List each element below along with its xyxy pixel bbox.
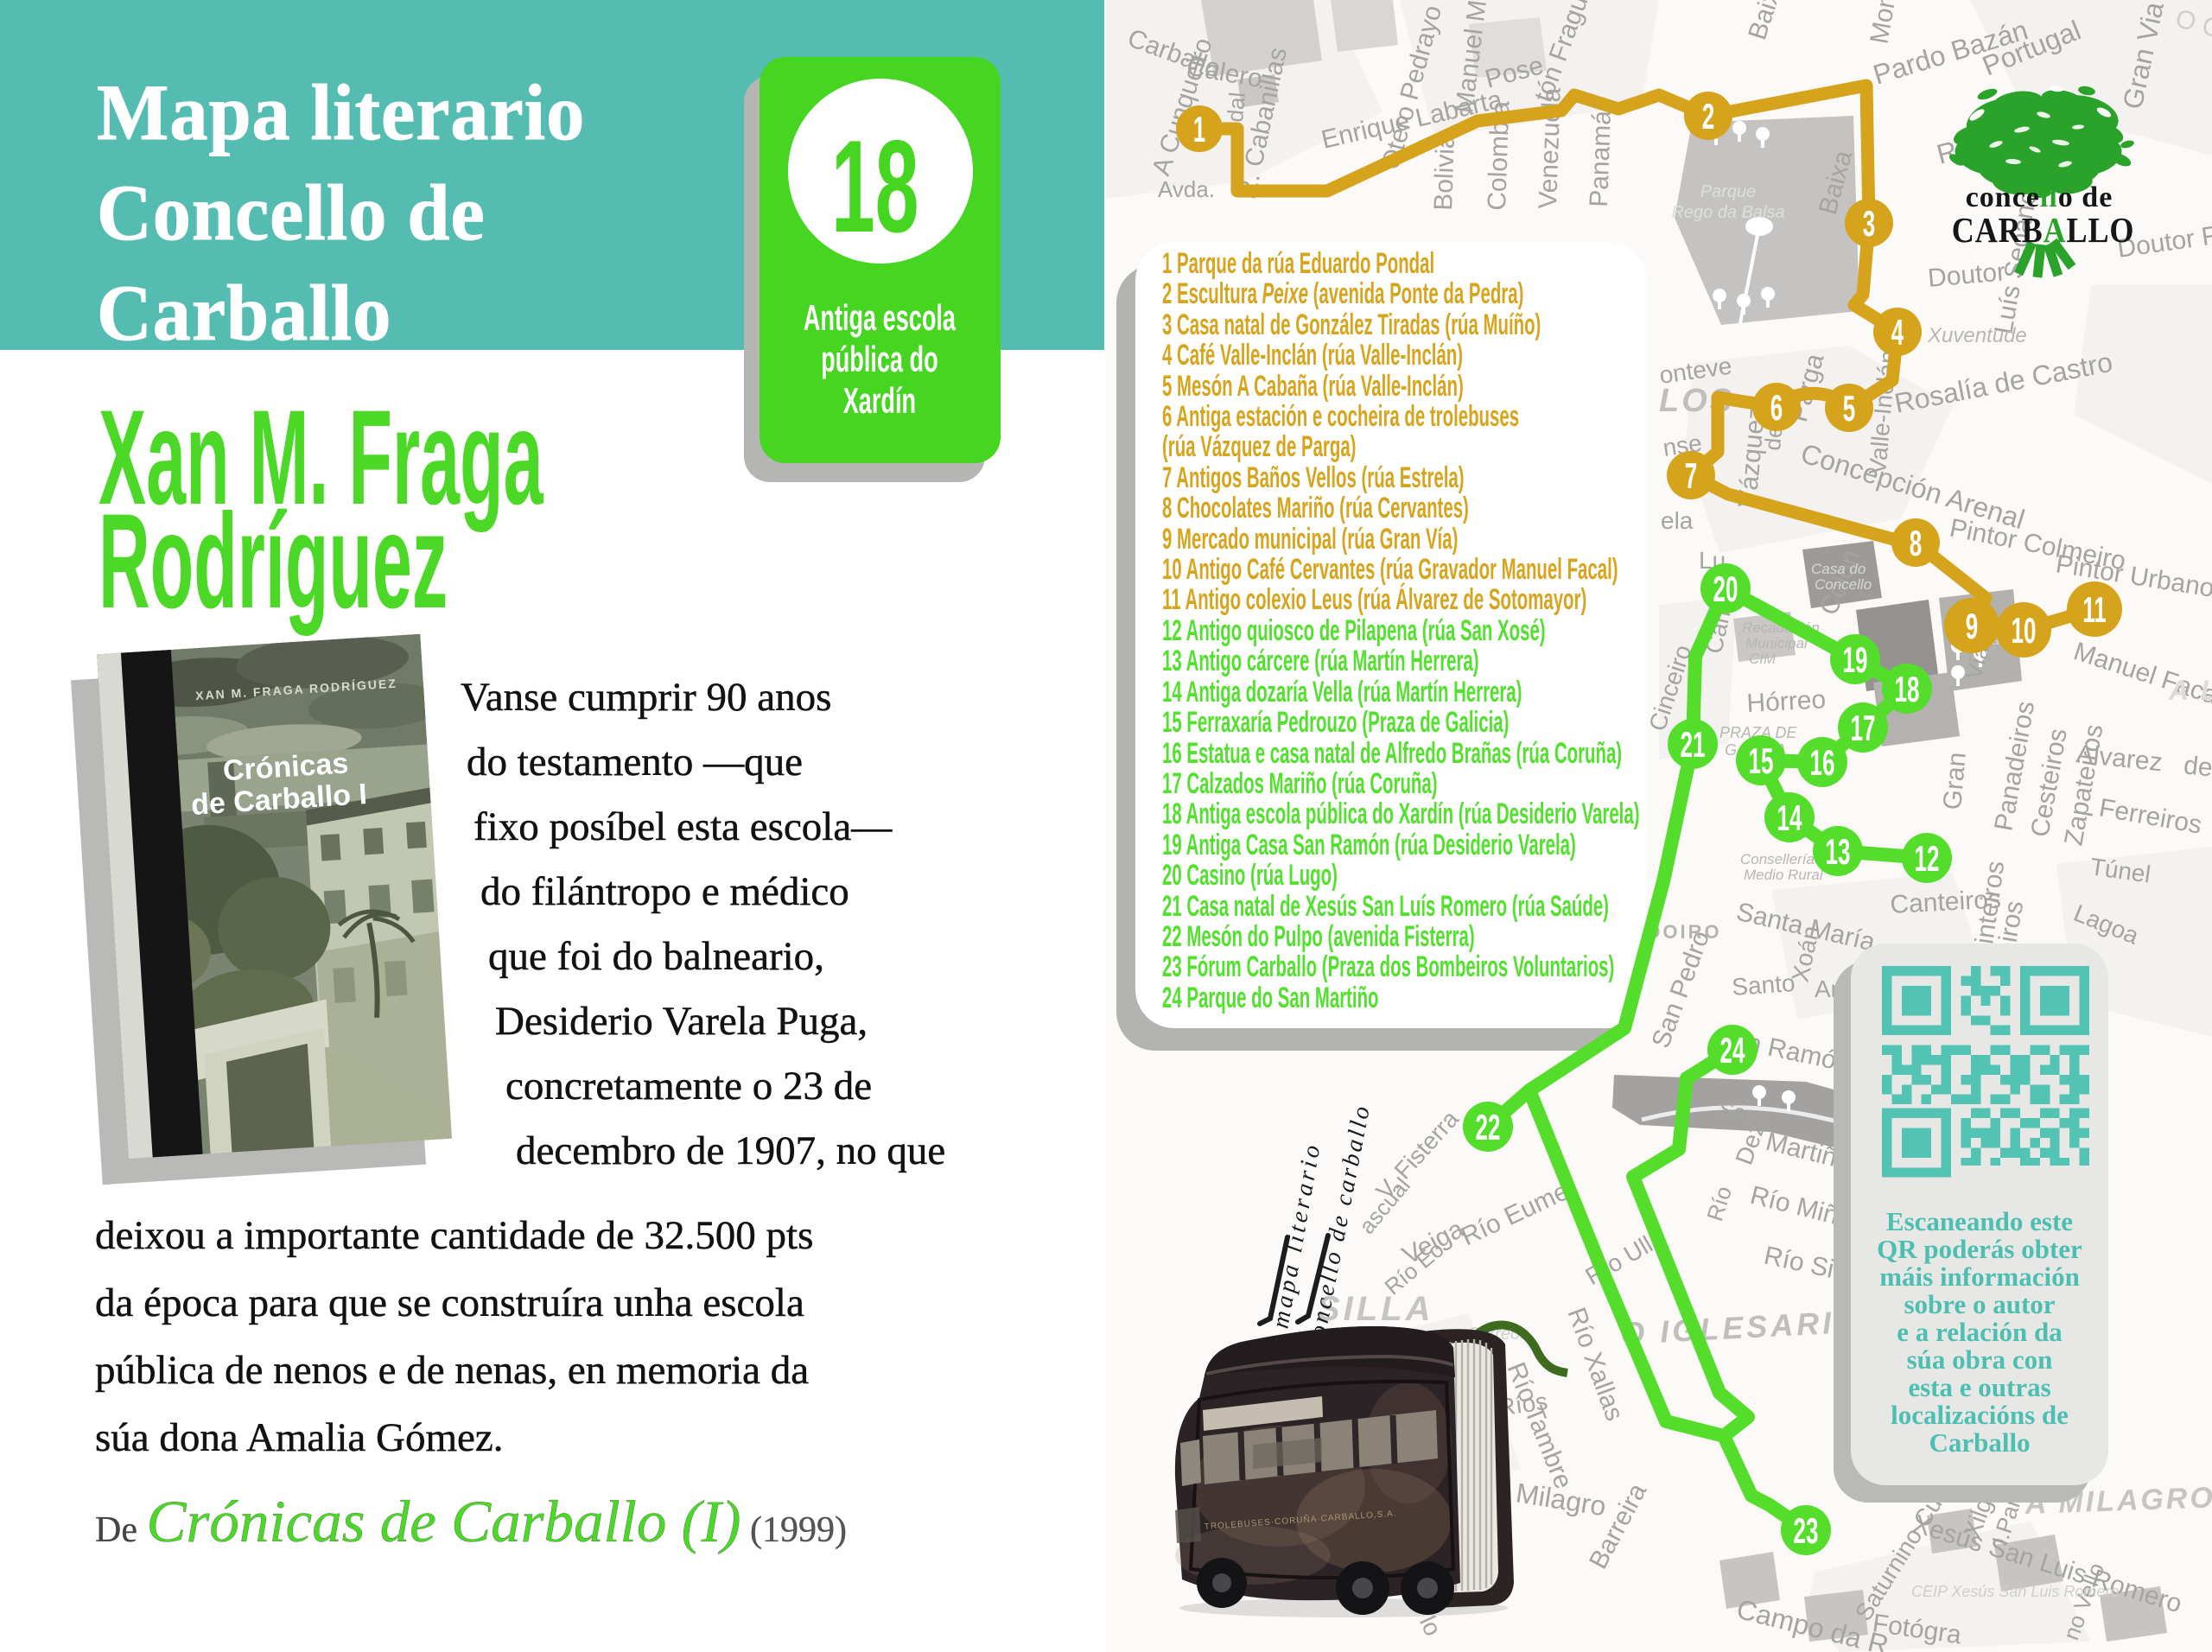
svg-text:14: 14: [1777, 798, 1802, 839]
svg-text:17: 17: [1851, 708, 1876, 749]
svg-text:9: 9: [1966, 607, 1978, 647]
svg-text:12: 12: [1915, 839, 1940, 880]
svg-text:20: 20: [1713, 569, 1738, 610]
svg-text:16: 16: [1810, 743, 1835, 784]
svg-text:22: 22: [1476, 1108, 1501, 1148]
svg-text:8: 8: [1910, 524, 1922, 564]
svg-text:5: 5: [1843, 389, 1855, 429]
svg-text:19: 19: [1843, 640, 1868, 681]
svg-text:1: 1: [1193, 110, 1205, 150]
svg-text:2: 2: [1702, 97, 1714, 137]
svg-text:15: 15: [1749, 741, 1774, 782]
svg-text:7: 7: [1685, 456, 1697, 497]
svg-text:24: 24: [1720, 1031, 1745, 1071]
svg-text:13: 13: [1826, 832, 1851, 873]
svg-text:21: 21: [1681, 725, 1706, 766]
svg-text:3: 3: [1863, 204, 1875, 245]
svg-text:23: 23: [1794, 1511, 1819, 1552]
svg-text:10: 10: [2012, 611, 2037, 651]
svg-text:11: 11: [2082, 590, 2107, 631]
svg-text:6: 6: [1770, 388, 1783, 429]
svg-text:4: 4: [1891, 313, 1904, 353]
svg-text:18: 18: [1895, 670, 1920, 710]
